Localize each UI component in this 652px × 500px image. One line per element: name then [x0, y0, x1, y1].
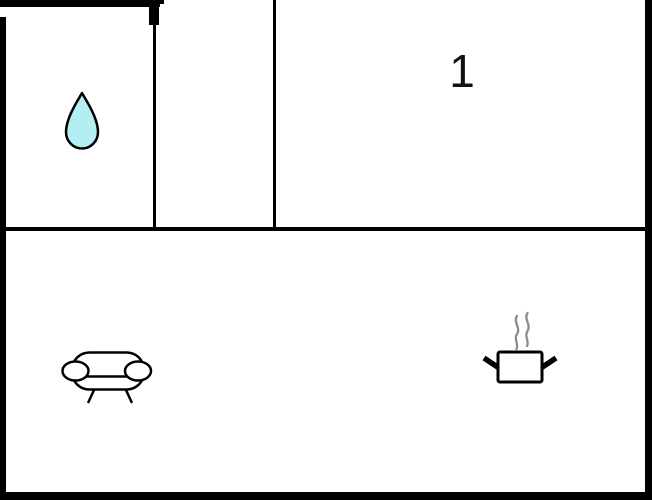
sofa-leg-right: [126, 390, 132, 403]
room-1-label: 1: [438, 46, 486, 97]
wall-exterior-right: [645, 0, 652, 500]
wall-hall-bedroom: [273, 0, 276, 230]
water-drop-shape: [66, 93, 98, 149]
sofa-armrest-left: [63, 362, 89, 381]
pot-body: [498, 352, 542, 382]
wall-interior-horizontal: [0, 227, 652, 231]
wall-exterior-left: [0, 17, 6, 500]
sofa-armrest-right: [125, 362, 151, 381]
cooking-pot-steam-icon: [478, 306, 562, 390]
sofa-leg-left: [88, 390, 94, 403]
wall-entrance-cap: [137, 0, 164, 4]
wall-exterior-bottom: [0, 492, 652, 500]
wall-bathroom-hall: [153, 22, 156, 230]
water-drop-icon: [60, 90, 104, 152]
steam-line-right: [526, 313, 528, 346]
steam-line-left: [516, 316, 518, 349]
floor-plan: 1: [0, 0, 652, 500]
wall-exterior-top: [0, 0, 160, 7]
sofa-icon: [60, 347, 154, 405]
